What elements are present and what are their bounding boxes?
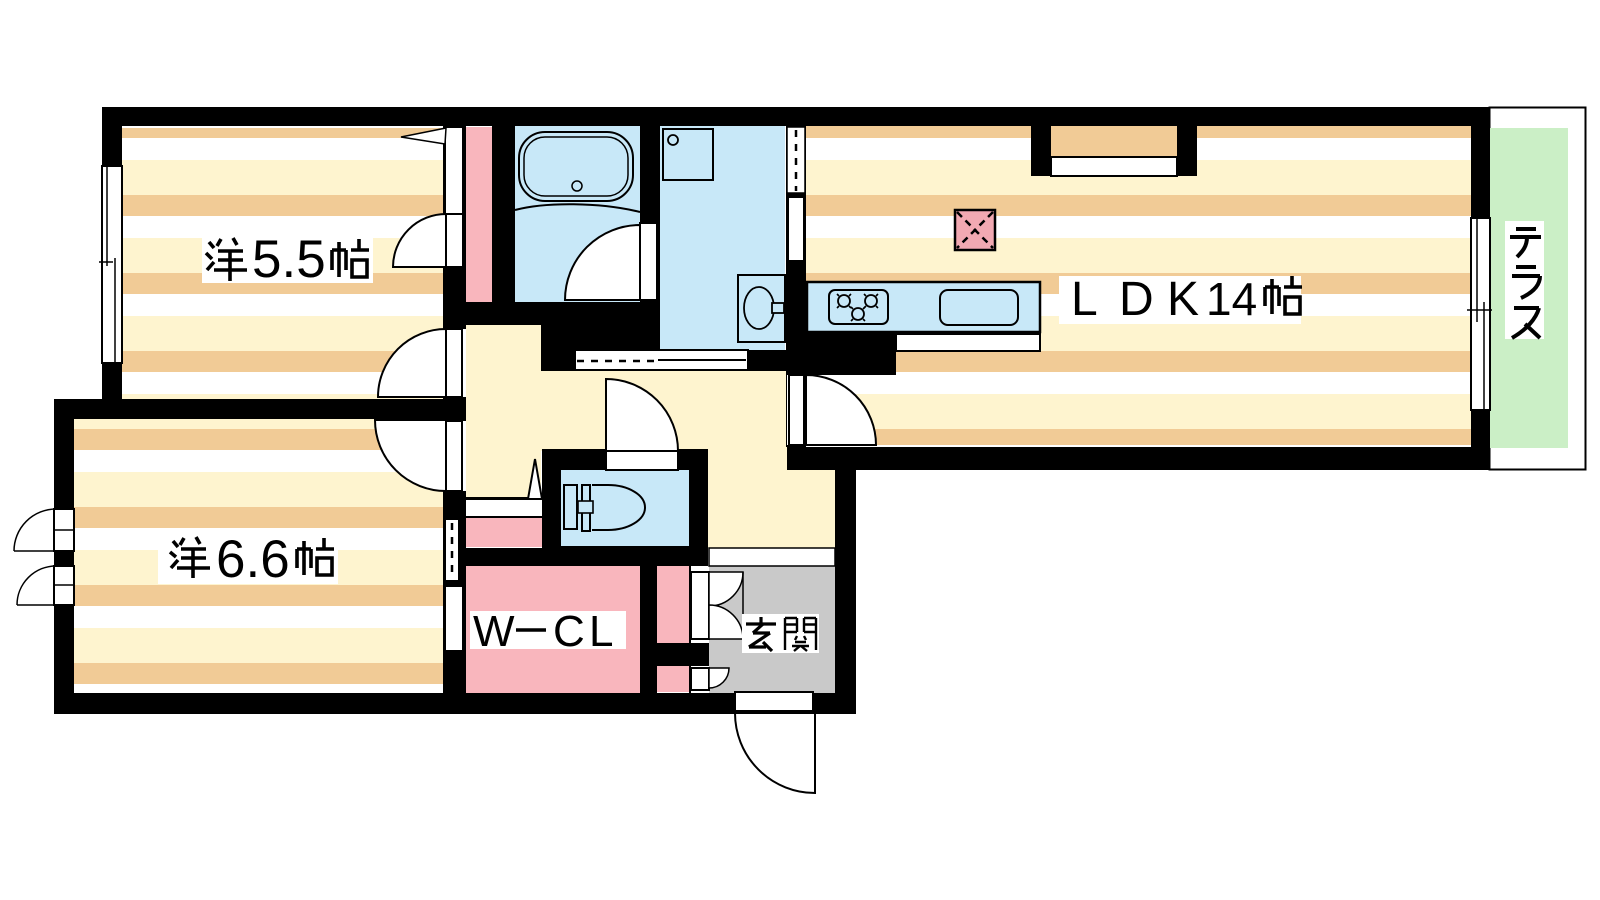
svg-text:L: L bbox=[589, 607, 613, 656]
svg-text:D: D bbox=[1119, 273, 1154, 326]
svg-text:K: K bbox=[1167, 273, 1199, 326]
svg-text:6.6: 6.6 bbox=[216, 530, 290, 589]
svg-text:L: L bbox=[1071, 273, 1098, 326]
svg-text:C: C bbox=[553, 607, 585, 656]
svg-text:5.5: 5.5 bbox=[252, 230, 326, 289]
svg-text:W: W bbox=[473, 607, 515, 656]
svg-text:14: 14 bbox=[1206, 273, 1257, 325]
